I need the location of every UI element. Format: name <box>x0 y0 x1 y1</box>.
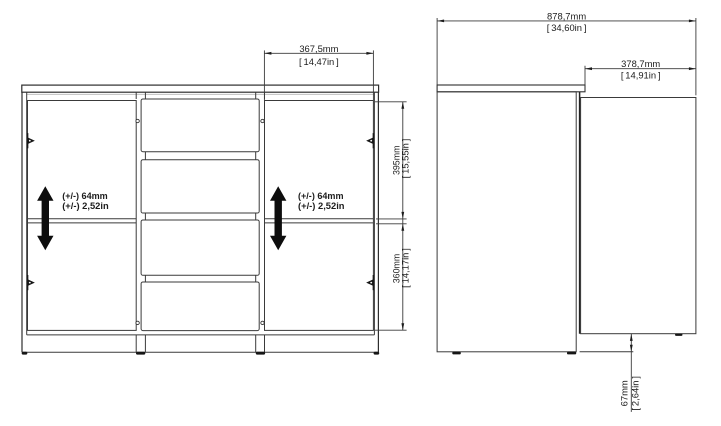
svg-text:[ 14,91in ]: [ 14,91in ] <box>621 69 661 80</box>
svg-text:367,5mm: 367,5mm <box>299 43 338 54</box>
svg-text:[ 14,17in ]: [ 14,17in ] <box>399 248 410 288</box>
svg-text:878,7mm: 878,7mm <box>547 10 586 21</box>
svg-text:67mm: 67mm <box>619 380 630 406</box>
svg-text:[ 15,55in ]: [ 15,55in ] <box>399 139 410 179</box>
svg-text:[ 34,60in ]: [ 34,60in ] <box>547 22 587 33</box>
svg-text:378,7mm: 378,7mm <box>621 58 660 69</box>
svg-text:(+/-) 2,52in: (+/-) 2,52in <box>298 201 345 212</box>
svg-text:[ 2,64in ]: [ 2,64in ] <box>629 376 640 411</box>
svg-text:(+/-) 2,52in: (+/-) 2,52in <box>62 201 109 212</box>
svg-text:[ 14,47in ]: [ 14,47in ] <box>299 56 339 67</box>
